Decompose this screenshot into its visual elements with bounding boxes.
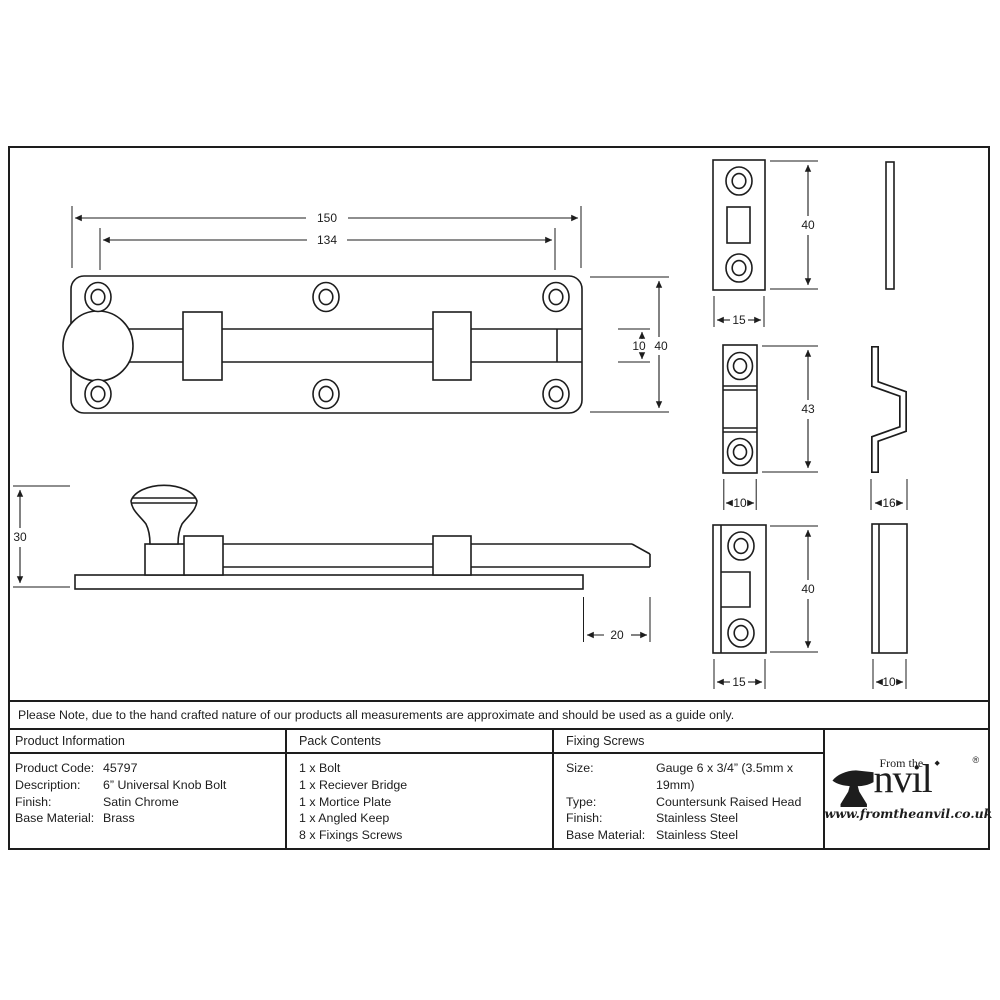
brand-column: From the ◆ nvil ® www.fromtheanvil.co.uk <box>823 730 988 848</box>
table-row: Base Material:Brass <box>15 810 285 827</box>
table-row: Description:6” Universal Knob Bolt <box>15 777 285 794</box>
row-value: Countersunk Raised Head <box>656 794 801 811</box>
fixing-screws-header: Fixing Screws <box>554 730 823 754</box>
dim-keep-side-depth: 10 <box>882 675 896 689</box>
mortice-slot <box>727 207 750 243</box>
list-item: 1 x Angled Keep <box>299 810 552 827</box>
row-value: 6” Universal Knob Bolt <box>103 777 226 794</box>
technical-drawing: 150 134 40 10 <box>10 148 988 700</box>
fixing-screws-column: Fixing Screws Size:Gauge 6 x 3/4” (3.5mm… <box>552 730 823 848</box>
dim-bridge-profile-depth: 16 <box>882 496 896 510</box>
dim-side-height: 30 <box>13 530 27 544</box>
product-information-column: Product Information Product Code:45797 D… <box>10 730 285 848</box>
dim-top-plate-height: 40 <box>654 339 668 353</box>
pack-contents-column: Pack Contents 1 x Bolt 1 x Reciever Brid… <box>285 730 552 848</box>
dim-bridge-width: 10 <box>733 496 747 510</box>
dim-bridge-height: 43 <box>801 402 815 416</box>
product-information-header: Product Information <box>10 730 285 754</box>
row-value: Satin Chrome <box>103 794 179 811</box>
list-item: 1 x Mortice Plate <box>299 794 552 811</box>
mortice-plate-edge-view <box>886 162 894 289</box>
dim-keep-height: 40 <box>801 582 815 596</box>
dim-top-shaft-width: 10 <box>632 339 646 353</box>
receiver-bridge-front-view: 43 10 <box>723 345 818 510</box>
row-value: Stainless Steel <box>656 810 738 827</box>
fixing-screws-body: Size:Gauge 6 x 3/4” (3.5mm x 19mm) Type:… <box>554 754 823 848</box>
table-row: Finish:Satin Chrome <box>15 794 285 811</box>
list-item: 1 x Reciever Bridge <box>299 777 552 794</box>
row-label: Type: <box>566 794 656 811</box>
bolt-side-view: 30 20 <box>13 485 650 642</box>
knob-side <box>131 485 197 544</box>
pack-contents-header: Pack Contents <box>287 730 552 754</box>
row-label: Base Material: <box>15 810 103 827</box>
row-label: Finish: <box>566 810 656 827</box>
note-text: Please Note, due to the hand crafted nat… <box>18 708 734 722</box>
table-row: Base Material:Stainless Steel <box>566 827 823 844</box>
pack-contents-body: 1 x Bolt 1 x Reciever Bridge 1 x Mortice… <box>287 754 552 848</box>
anvil-icon <box>831 765 875 808</box>
table-row: Size:Gauge 6 x 3/4” (3.5mm x 19mm) <box>566 760 823 794</box>
brand-url: www.fromtheanvil.co.uk <box>825 806 989 821</box>
base-plate-side <box>75 575 583 589</box>
bolt-top-view: 150 134 40 10 <box>63 206 669 413</box>
table-row: Type:Countersunk Raised Head <box>566 794 823 811</box>
receiver-bridge-profile-view: 16 <box>871 346 907 510</box>
registered-mark: ® <box>973 755 980 765</box>
dim-mortice-height: 40 <box>801 218 815 232</box>
info-table: Please Note, due to the hand crafted nat… <box>10 700 988 848</box>
row-label: Base Material: <box>566 827 656 844</box>
list-item: 8 x Fixings Screws <box>299 827 552 844</box>
from-the-anvil-logo: From the ◆ nvil ® www.fromtheanvil.co.uk <box>831 756 983 822</box>
mortice-plate-front-view: 40 15 <box>713 160 818 327</box>
product-information-body: Product Code:45797 Description:6” Univer… <box>10 754 285 848</box>
knob-top <box>63 311 133 381</box>
row-value: Gauge 6 x 3/4” (3.5mm x 19mm) <box>656 760 823 794</box>
table-row: Finish:Stainless Steel <box>566 810 823 827</box>
dim-mortice-width: 15 <box>732 313 746 327</box>
row-value: 45797 <box>103 760 137 777</box>
row-value: Stainless Steel <box>656 827 738 844</box>
row-label: Description: <box>15 777 103 794</box>
measurement-note: Please Note, due to the hand crafted nat… <box>10 700 988 728</box>
dim-top-bolt-length: 134 <box>317 233 337 247</box>
diamond-ornament-icon: ◆ <box>935 759 940 767</box>
dim-top-overall-length: 150 <box>317 211 337 225</box>
row-label: Finish: <box>15 794 103 811</box>
angled-keep-front-view: 40 15 <box>713 525 818 689</box>
row-label: Product Code: <box>15 760 103 777</box>
logo-name: nvil <box>874 759 932 799</box>
angled-keep-side-view: 10 <box>872 524 907 689</box>
list-item: 1 x Bolt <box>299 760 552 777</box>
product-spec-sheet: 150 134 40 10 <box>0 0 1000 1000</box>
table-row: Product Code:45797 <box>15 760 285 777</box>
row-value: Brass <box>103 810 135 827</box>
table-columns: Product Information Product Code:45797 D… <box>10 728 988 848</box>
dim-keep-width: 15 <box>732 675 746 689</box>
row-label: Size: <box>566 760 656 794</box>
sheet-border: 150 134 40 10 <box>8 146 990 850</box>
bolt-guide-right <box>433 312 471 380</box>
dim-side-throw: 20 <box>610 628 624 642</box>
bolt-guide-left <box>183 312 222 380</box>
